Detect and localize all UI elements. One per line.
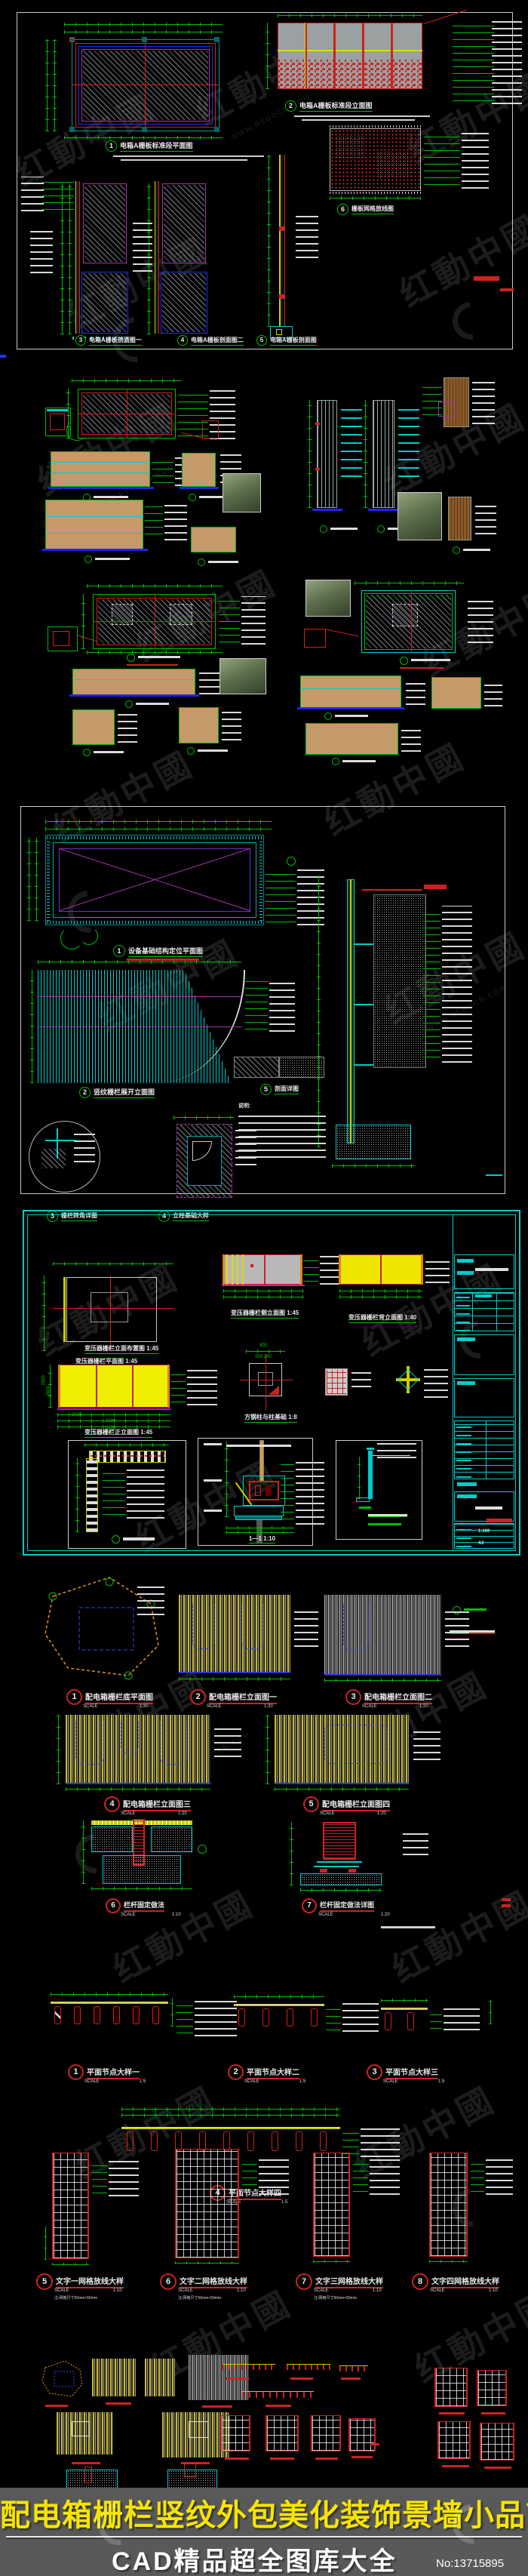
c3-dim-bottom xyxy=(87,651,223,654)
sheet1-detail4-title: 4 电箱A栅板剖面图二 xyxy=(177,335,244,346)
s4-front-title: 变压器栅栏正立面图 1:45 xyxy=(84,1428,152,1438)
mini-grid xyxy=(348,2418,376,2451)
c2-tan-c-labels xyxy=(164,501,187,540)
mini-title xyxy=(45,2405,68,2407)
c2-elev-tan-a xyxy=(51,451,150,487)
s4-z-note-bar xyxy=(368,1523,401,1525)
s4-plan-dim-left xyxy=(42,1276,46,1351)
s4-j-dim-left xyxy=(75,1458,79,1532)
s4-z-bar xyxy=(368,1451,373,1499)
s3-det5-hatch xyxy=(234,1057,279,1078)
n1-labels xyxy=(195,2000,237,2036)
c3r-centerline xyxy=(411,590,412,653)
mini-title xyxy=(481,2412,505,2414)
s4-yellow-elev-big xyxy=(60,1365,168,1408)
detail-title: 文字三网格放线大样 xyxy=(315,2275,383,2288)
plan1-dim-left2 xyxy=(53,39,57,131)
s4-sec-dim-b1 xyxy=(226,1526,294,1529)
n1-posts xyxy=(54,2006,61,2024)
s3-plan-dim-left2 xyxy=(35,838,38,921)
n4-post xyxy=(127,2131,134,2151)
s4-j-vert-strip xyxy=(86,1458,98,1532)
g7-leaders xyxy=(353,2160,368,2192)
detail-number: 6 xyxy=(160,2273,177,2290)
scale-value: 1:10 xyxy=(113,2288,122,2293)
note-line xyxy=(113,155,264,157)
s4-j-title-bar xyxy=(123,1537,155,1540)
c3-dim-left xyxy=(81,594,85,649)
s3-ticks-right xyxy=(259,839,262,921)
plan1-dim-top2 xyxy=(64,30,223,34)
s4-fdn-title: 方钢柱与柱基础 1:8 xyxy=(244,1413,297,1423)
s4-z-dim-b xyxy=(359,1507,371,1509)
s3-sec-ties xyxy=(355,943,373,945)
s4-gray-dim1 xyxy=(223,1289,303,1293)
mesh6-labels xyxy=(462,130,489,189)
sec3-post xyxy=(75,181,80,334)
c3r-tan-c xyxy=(305,723,398,755)
sheet1-detail3-title: 3 电箱A栅板剖面图一 xyxy=(75,335,142,346)
mini-title xyxy=(290,2377,313,2380)
s4-yb-labels xyxy=(187,1366,217,1405)
detail-title: 文字一网格放线大样 xyxy=(56,2275,124,2288)
c3-title-bar xyxy=(198,749,228,752)
c3-tan-a-line xyxy=(72,679,195,680)
g5-leaders xyxy=(92,2160,107,2193)
c5-elev2-ubox xyxy=(343,1604,369,1651)
c2-small-purple-det xyxy=(438,402,455,417)
c3-tan-small-a-labels xyxy=(118,712,137,743)
sec4-lower-hatch xyxy=(162,273,206,332)
mini-elev xyxy=(92,2359,136,2396)
s4-gray-marker xyxy=(250,1264,253,1267)
c2-side-detail-cap xyxy=(47,409,68,411)
s4-ys-rails xyxy=(339,1254,341,1285)
c5-elev3-ubox xyxy=(121,1721,139,1754)
s4-dim-text: 2400 xyxy=(47,1386,51,1396)
detail-title: 设备基础结构定位平面图 xyxy=(128,946,203,957)
n2-post xyxy=(287,2008,293,2027)
sec5-red-mark xyxy=(279,294,285,299)
s3-plan-leaders xyxy=(266,868,296,922)
s4-sec-toplabel xyxy=(226,1445,291,1447)
scale-label: SCALE xyxy=(362,1704,377,1709)
s3-sec-core xyxy=(350,879,351,1143)
scale-label: SCALE xyxy=(84,2079,100,2084)
scale-value: 1:5 xyxy=(140,2079,146,2084)
s4-yb-base xyxy=(57,1408,170,1410)
s4-plan-inner xyxy=(91,1292,128,1322)
c3r-tan-a-line xyxy=(300,688,401,689)
s4-sec-title: 1—1 1:10 xyxy=(249,1535,275,1543)
n4-rail xyxy=(121,2127,340,2129)
scale-label: SCALE xyxy=(320,1811,335,1816)
plan1-dim-bottom xyxy=(64,136,223,140)
s4-plan-dim xyxy=(53,1262,173,1266)
sec4-labels xyxy=(133,219,152,272)
s4-j-title-circle xyxy=(112,1535,120,1543)
detail-title: 电箱A栅板标准段平面图 xyxy=(120,140,193,152)
detail-title: 剖面详图 xyxy=(275,1085,299,1094)
grid-note: 注:网格尺寸50mm×50mm xyxy=(314,2295,357,2301)
plan1-dim-left1 xyxy=(45,39,49,131)
detail-number: 6 xyxy=(106,1898,121,1913)
c3-tan-a-labels xyxy=(199,672,220,694)
banner-number: No:13715895 xyxy=(436,2557,504,2570)
detail-number: 2 xyxy=(79,1087,91,1098)
c5-fdnA-marker xyxy=(198,1845,207,1854)
s3-slat-dim-top xyxy=(38,960,241,964)
scale-value: 1:20 xyxy=(264,1704,273,1709)
c2-tan-a-base xyxy=(48,487,154,489)
scale-value: 1:5 xyxy=(438,2079,444,2084)
c2-title-bar xyxy=(94,496,128,498)
c8-title-8: 8 文字四网格放线大样 xyxy=(412,2273,499,2290)
mesh6-patch xyxy=(377,151,411,177)
s3-sec-labels xyxy=(442,906,472,1063)
mini-title xyxy=(351,2456,373,2458)
c5-fdnB-pedestal xyxy=(317,1861,362,1863)
c2-dim-top xyxy=(72,379,182,383)
s4-ys-divider xyxy=(380,1254,382,1285)
detail-title: 配电箱栅栏立面图二 xyxy=(364,1691,432,1704)
s4-dim-text: 1030 xyxy=(106,1419,115,1423)
s4-tb-text xyxy=(475,1507,502,1510)
g5-dim-bottom xyxy=(52,2263,89,2266)
s3-notes-lines xyxy=(238,1111,326,1158)
n1-post xyxy=(74,2006,81,2024)
c5-elev2 xyxy=(324,1595,441,1676)
c3r-title-bar xyxy=(342,760,376,762)
detail-title: 平面节点大样三 xyxy=(385,2066,438,2079)
mini-title xyxy=(226,2377,249,2380)
c5-fdnB-dim-left xyxy=(290,1822,293,1885)
c3r-title-circle xyxy=(324,712,332,720)
n4-labels xyxy=(361,2124,400,2157)
n4-post xyxy=(272,2131,278,2151)
sheet3-detail1-title: 1 设备基础结构定位平面图 xyxy=(113,945,203,957)
n1-post xyxy=(133,2006,140,2024)
detail-title: 电箱A栅板剖面图二 xyxy=(191,336,244,346)
s4-j-top-strip xyxy=(89,1451,166,1463)
c3r-title-underline xyxy=(400,667,444,669)
c2-centerline-v xyxy=(127,389,127,439)
c2-slat-a-base xyxy=(312,509,342,511)
sheet3-detail2-title: 2 竖纹栅栏展开立面图 xyxy=(79,1087,155,1098)
detail-title: 配电箱栅栏立面图三 xyxy=(123,1798,191,1811)
detail-number: 8 xyxy=(412,2273,428,2290)
plan1-centerline-v xyxy=(145,39,146,131)
n3-labels xyxy=(444,2006,480,2030)
s4-tb-cells xyxy=(456,1422,471,1478)
c5-elev3-dim xyxy=(66,1787,210,1791)
c2-slat-a-mark xyxy=(315,468,320,470)
mesh6-ticks-bottom xyxy=(330,192,421,194)
s3-ticks-bottom xyxy=(47,921,262,924)
c3-tan-small-b-labels xyxy=(222,710,241,740)
c3-tan-a xyxy=(72,669,195,696)
mesh6-patch xyxy=(336,136,366,158)
s4-ys-labels xyxy=(425,1256,450,1283)
c5-fdnA-base xyxy=(103,1855,181,1884)
banner-title: 配电箱栅栏竖纹外包美化装饰景墙小品节点 xyxy=(0,2491,528,2534)
s4-tb-cells xyxy=(456,1525,471,1547)
watermark-text: 红動中國 xyxy=(382,1876,528,1993)
banner: 配电箱栅栏竖纹外包美化装饰景墙小品节点 CAD精品超全图库大全 No:13715… xyxy=(0,2488,528,2576)
detail-title: 电箱A栅板剖面图一 xyxy=(89,336,142,346)
mini-title xyxy=(266,2405,291,2407)
s3-marker-circle xyxy=(287,857,296,866)
scale-value: 1:5 xyxy=(281,2200,287,2205)
c5-title-1: 1 配电箱栅栏底平面图 xyxy=(66,1689,153,1705)
c3r-tan-a-labels xyxy=(406,679,425,705)
scale-value: 1:30 xyxy=(140,1704,149,1709)
c2-tan-c-leaders xyxy=(145,504,163,534)
n4-dim1 xyxy=(121,2107,340,2111)
sheet1-detail6-title: 6 栅板网格放线图 xyxy=(337,204,394,215)
c3-labels xyxy=(241,596,266,645)
g6-grid xyxy=(175,2149,239,2258)
mini-window xyxy=(72,2421,90,2436)
c2-slat-a-mark xyxy=(315,423,320,425)
mesh6-ticks-top xyxy=(330,125,421,128)
detail-title: 配电箱栅栏底平面图 xyxy=(85,1691,153,1704)
c5-elev1-labels xyxy=(294,1608,318,1647)
mini-grid xyxy=(266,2415,299,2451)
reference-photo xyxy=(223,473,261,512)
c2-title-circle xyxy=(198,559,205,566)
s3-det4-dim xyxy=(173,1116,234,1119)
detail-number: 5 xyxy=(303,1796,319,1812)
s3-sec-dim xyxy=(317,876,321,1147)
s4-sec-labels xyxy=(296,1457,324,1525)
c5-title-4: 4 配电箱栅栏立面图三 xyxy=(104,1796,191,1812)
n3-rail xyxy=(381,2008,428,2010)
scale-value: 1:20 xyxy=(178,1811,187,1816)
mini-polygon-plan xyxy=(39,2359,84,2400)
c5-elev3-ubox xyxy=(160,1721,187,1765)
red-glyph xyxy=(502,1898,511,1901)
c5-fdnB-post xyxy=(323,1822,356,1860)
mini-fdn-post xyxy=(184,2464,196,2477)
s4-gray-base xyxy=(222,1285,305,1286)
c2-slat-a-dim xyxy=(308,400,312,508)
detail-title: 栅板网格放线图 xyxy=(351,205,394,214)
c2-title-bar xyxy=(463,549,490,551)
c5-title-3: 3 配电箱栅栏立面图二 xyxy=(345,1689,432,1705)
s4-gray-divider xyxy=(264,1254,266,1285)
n4-post xyxy=(320,2131,327,2151)
n2-rail xyxy=(234,2004,324,2006)
c3r-tan-c-labels xyxy=(401,726,421,752)
g7-labels xyxy=(370,2156,400,2195)
c8-title-5: 5 文字一网格放线大样 xyxy=(36,2273,124,2290)
n1-rail xyxy=(51,2002,168,2004)
c2-title-circle xyxy=(189,494,196,501)
detail-title: 配电箱栅栏立面图四 xyxy=(322,1798,390,1811)
c2-small-det xyxy=(202,420,219,439)
c2-title-bar xyxy=(95,558,130,560)
plan1-dim-top1 xyxy=(64,23,223,26)
c3-tan-small-a xyxy=(72,709,115,745)
mini-grid xyxy=(477,2370,507,2406)
c3r-dim-top xyxy=(355,581,464,585)
c5-title-6: 6 栏杆固定做法 xyxy=(106,1898,164,1913)
s4-ys-dim2 xyxy=(339,1295,422,1299)
grid-note: 注:网格尺寸50mm×50mm xyxy=(178,2295,221,2301)
s4-z-cap xyxy=(367,1448,374,1450)
scale-label: SCALE xyxy=(314,2288,329,2293)
c2-wood-detail-b xyxy=(448,497,471,540)
detail-number: 1 xyxy=(113,945,125,957)
detail-number: 3 xyxy=(345,1689,361,1705)
s4-tb-bar xyxy=(457,1337,475,1341)
s3-edge-label xyxy=(486,1168,502,1176)
s3-sec-red-line xyxy=(362,889,422,891)
c5-title-7: 7 栏杆固定做法详图 xyxy=(302,1898,374,1913)
s4-front-top-title: 变压器栅栏立面布置图 1:45 xyxy=(84,1344,158,1354)
s3-sec-leaders xyxy=(422,909,441,1057)
watermark-text: 红動中國 xyxy=(103,1876,262,1993)
detail-title: 栏杆固定做法 xyxy=(124,1900,164,1912)
s4-sec-dim xyxy=(225,1442,229,1517)
mini-grid xyxy=(220,2415,250,2451)
banner-subtitle: CAD精品超全图库大全 xyxy=(112,2541,398,2576)
c5-fdnA-block xyxy=(151,1827,192,1852)
scale-label: SCALE xyxy=(83,1704,98,1709)
g8-leaders xyxy=(471,2160,484,2192)
c5-fdnB-base xyxy=(300,1873,382,1885)
detail-number: 2 xyxy=(285,100,296,112)
mini-foundation xyxy=(66,2470,118,2489)
c2-title-circle xyxy=(453,546,460,554)
s4-plan-cross-v xyxy=(110,1276,111,1351)
sec5-dim xyxy=(267,155,271,327)
detail-number: 5 xyxy=(260,1084,272,1095)
detail-title: 电箱A栅板剖面图 xyxy=(270,336,317,346)
g5-grid xyxy=(52,2153,89,2259)
c2-title-circle xyxy=(377,525,385,533)
n4-dim2 xyxy=(121,2113,340,2117)
s4-tb-bar xyxy=(457,1482,477,1486)
g5-dim-left xyxy=(44,2227,47,2260)
scale-label: SCALE xyxy=(430,2288,445,2293)
scale-label: SCALE xyxy=(207,1704,222,1709)
c3r-title-circle xyxy=(332,758,339,765)
s4-plan-cross-h xyxy=(53,1308,173,1309)
c5-elev1-ubox xyxy=(241,1604,264,1649)
c3-title-bar xyxy=(94,751,124,753)
s4-sec-dim-b2 xyxy=(226,1531,294,1534)
scale-value: 1:20 xyxy=(381,1913,390,1917)
mini-node-strip xyxy=(287,2364,330,2370)
c2-title-circle xyxy=(320,525,327,533)
mini-title xyxy=(439,2412,465,2414)
s3-door-arc xyxy=(80,927,98,945)
detail-number: 3 xyxy=(367,2064,382,2080)
sec3-upper-hatch xyxy=(84,185,125,262)
s3-slat-purple-line xyxy=(38,996,241,997)
scale-value: 1:10 xyxy=(172,1913,181,1917)
s4-gray-elev-slats xyxy=(226,1254,247,1285)
s4-sec-levels xyxy=(204,1443,222,1445)
c3-title-circle xyxy=(83,749,91,756)
n2-post xyxy=(262,2008,269,2027)
mini-node-strip xyxy=(339,2365,368,2371)
c5-elev4-dim xyxy=(275,1787,409,1791)
c5-elev3-dim-left xyxy=(57,1715,60,1784)
c2-slat-a-labels xyxy=(341,408,362,477)
mini-grid xyxy=(434,2368,468,2407)
s3-sec-wall-hatch xyxy=(373,894,426,1068)
n3-post xyxy=(385,2012,391,2030)
sheet1-detail1-title: 1 电箱A栅板标准段平面图 xyxy=(106,140,193,152)
c5-elev4-labels xyxy=(413,1728,441,1760)
s4-tb-col xyxy=(472,1292,473,1331)
mini-grid xyxy=(437,2421,471,2459)
s4-dim-text: 900 xyxy=(259,1343,267,1348)
c5-fdnB-labels xyxy=(403,1833,428,1855)
mini-title xyxy=(225,2458,249,2460)
c2-title-bar xyxy=(208,561,238,563)
c7-title-3: 3 平面节点大样三 xyxy=(367,2064,438,2080)
s4-tb-size: A2 xyxy=(478,1541,484,1546)
n2-post xyxy=(238,2008,245,2027)
c5-elev3-labels xyxy=(214,1725,241,1757)
c2-title-circle xyxy=(84,556,92,563)
s4-tb-col xyxy=(486,1420,487,1479)
cad-canvas: 红動中國 红動中國 红動中國 红動中國 红動中國 红動中國 红動中國 红動中國 … xyxy=(0,0,528,2576)
elev2-dim-top xyxy=(278,14,422,17)
c5-elev4-dim-left xyxy=(266,1715,269,1784)
c5-note-line xyxy=(381,1926,435,1928)
n1-dim-right xyxy=(170,1998,173,2027)
c5-plan-labels xyxy=(137,1585,164,1615)
s4-gray-rails xyxy=(223,1254,225,1285)
s4-z-labels xyxy=(377,1443,416,1458)
n2-post xyxy=(311,2008,318,2027)
c3r-tan-a-base xyxy=(297,707,404,709)
scale-value: 1:20 xyxy=(419,1704,428,1709)
n4-post xyxy=(151,2131,158,2151)
s3-sec-red-label xyxy=(424,885,447,889)
detail-number: 1 xyxy=(66,1689,82,1705)
c2-tan-b-base xyxy=(180,487,219,489)
detail-number: 1 xyxy=(106,140,117,152)
s4-gray-title: 变压器栅栏侧立面图 1:45 xyxy=(231,1309,299,1319)
scale-value: 1:20 xyxy=(377,1811,386,1816)
g8-labels xyxy=(486,2156,513,2195)
s4-tb-cells xyxy=(456,1294,470,1331)
s4-z-dim xyxy=(358,1457,361,1499)
scale-label: SCALE xyxy=(121,1811,136,1816)
s3-det3-labels xyxy=(74,1132,95,1162)
c3r-labels xyxy=(468,596,493,643)
mesh6-leaders xyxy=(424,132,460,185)
c2-tan-c-base xyxy=(42,549,148,551)
c3r-tan-b xyxy=(431,677,481,709)
mesh6-dim xyxy=(330,196,421,200)
c5-title-2: 2 配电箱栅栏立面图一 xyxy=(190,1689,277,1705)
g5-labels xyxy=(109,2156,139,2196)
s4-fdn-cross-v xyxy=(266,1354,266,1410)
mini-title xyxy=(442,2465,469,2467)
reference-photo xyxy=(219,658,266,694)
s4-dim-text: 2500 xyxy=(42,1375,47,1385)
s4-tb-text xyxy=(475,1268,508,1271)
mini-window xyxy=(189,2421,208,2438)
c3-title-circle xyxy=(125,700,133,708)
